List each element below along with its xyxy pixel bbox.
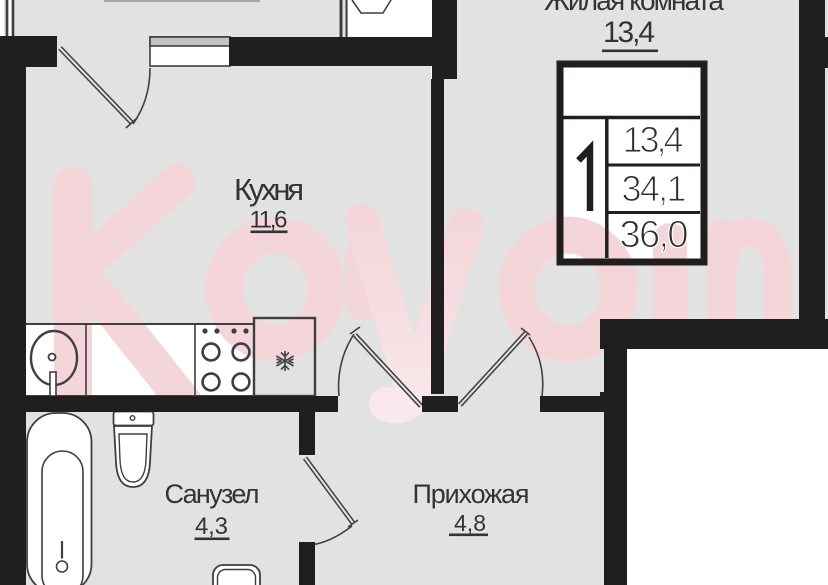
svg-text:13,4: 13,4 xyxy=(623,119,684,160)
svg-text:Санузел: Санузел xyxy=(165,479,260,509)
svg-text:4,3: 4,3 xyxy=(195,513,228,540)
svg-text:4,8: 4,8 xyxy=(454,510,486,536)
svg-text:Прихожая: Прихожая xyxy=(413,479,530,509)
svg-text:Жилая комната: Жилая комната xyxy=(544,0,724,16)
svg-text:36,0: 36,0 xyxy=(620,214,689,256)
svg-text:34,1: 34,1 xyxy=(622,168,687,209)
svg-text:13,4: 13,4 xyxy=(603,16,655,49)
svg-text:Кухня: Кухня xyxy=(234,172,304,207)
svg-text:11,6: 11,6 xyxy=(250,207,288,234)
